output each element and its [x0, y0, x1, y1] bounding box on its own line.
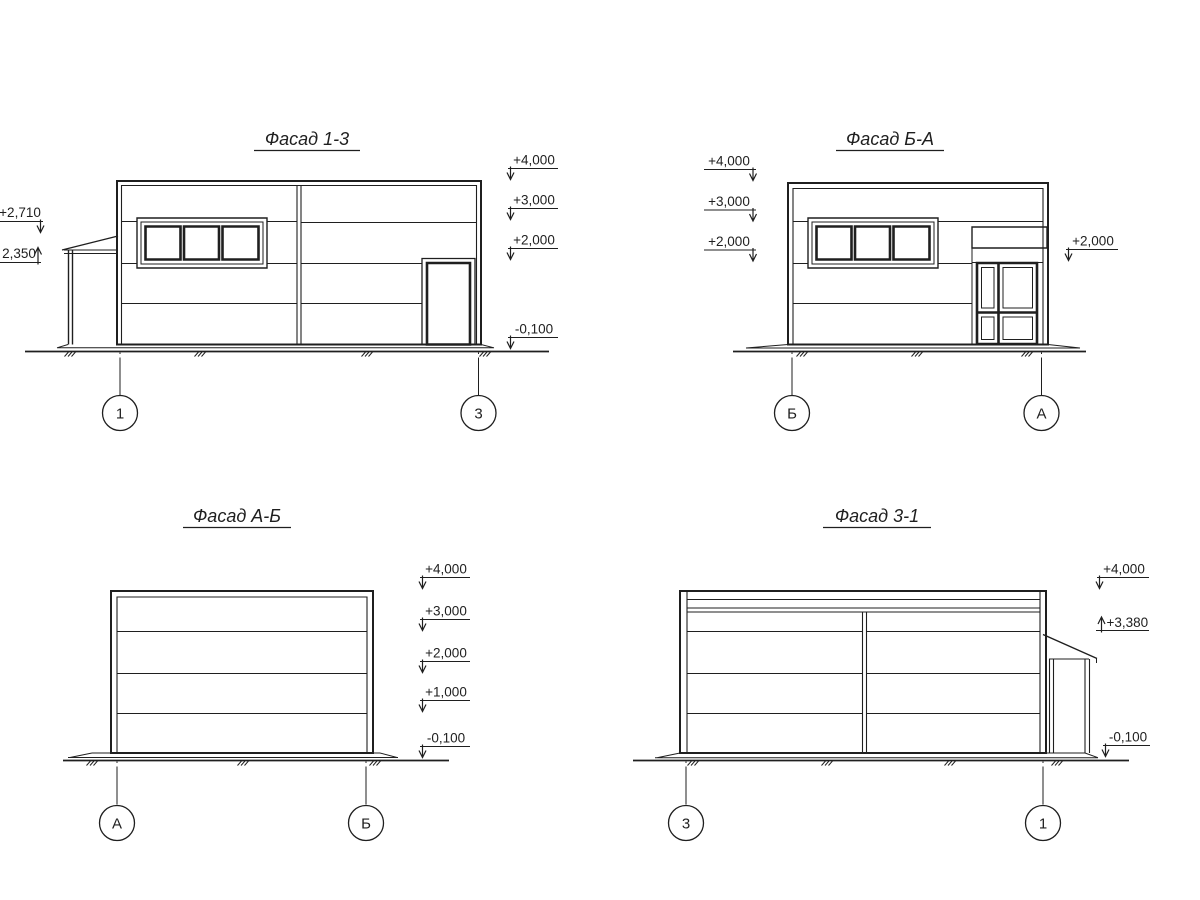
- axis-label: Б: [361, 816, 371, 833]
- wall-joint: [863, 612, 867, 753]
- window-pane: [894, 227, 930, 260]
- elevation-mark: +2,000: [1065, 234, 1118, 261]
- elevation-label: +2,000: [708, 234, 750, 249]
- fascia-band: [687, 600, 1040, 613]
- panel-lines-right: [867, 632, 1041, 714]
- building-inner-outline: [117, 597, 367, 753]
- glazed-door-bars: [977, 263, 1037, 344]
- window-pane: [184, 227, 219, 260]
- elevation-label: +4,000: [708, 154, 750, 169]
- facade-b-a-building: [788, 183, 1048, 345]
- elevation-mark: +2,710: [0, 205, 44, 233]
- facade-a-b-building: [111, 591, 373, 753]
- entrance: [972, 227, 1047, 345]
- elevation-mark: +3,000: [507, 193, 558, 220]
- door-glass: [982, 317, 995, 340]
- corner-columns: [687, 591, 1040, 753]
- elevation-mark: +3,000: [704, 194, 757, 221]
- door-opening: [422, 259, 475, 345]
- building-inner-outline: [793, 189, 1043, 345]
- elevation-mark: +2,000: [704, 234, 757, 261]
- elevation-label: +3,000: [425, 604, 467, 619]
- side-annex: [1043, 635, 1097, 754]
- window-pane: [855, 227, 890, 260]
- elevation-mark: +3,000: [419, 604, 470, 631]
- facade-b-a: Фасад Б-А: [704, 129, 1118, 431]
- facade-3-1-building: [680, 591, 1097, 753]
- ground-hatch: [797, 352, 808, 357]
- ground-hatch: [912, 352, 923, 357]
- facade-b-a-elevation-marks: +4,000 +3,000 +2,000 +2,000: [704, 154, 1118, 262]
- facade-title: Фасад Б-А: [846, 129, 934, 149]
- facade-1-3: Фасад 1-3: [0, 129, 558, 431]
- facade-title: Фасад А-Б: [193, 506, 281, 526]
- door: [422, 259, 475, 345]
- elevation-label: -0,100: [427, 731, 465, 746]
- elevation-mark: -0,100: [507, 322, 558, 349]
- elevation-label: +4,000: [513, 153, 555, 168]
- elevation-label: +1,000: [425, 685, 467, 700]
- annex-walls: [1050, 659, 1090, 753]
- ground-hatch: [87, 761, 98, 766]
- elevation-mark: -0,100: [1102, 730, 1150, 757]
- building-outline: [111, 591, 373, 753]
- facade-title: Фасад 3-1: [835, 506, 919, 526]
- drawing-sheet: Фасад 1-3: [0, 0, 1200, 900]
- side-annex: [62, 236, 118, 345]
- ribbon-window: [137, 218, 267, 268]
- door-glass: [1003, 268, 1033, 309]
- window-pane: [146, 227, 181, 260]
- ground-hatch: [370, 761, 381, 766]
- elevation-mark: -0,100: [419, 731, 470, 758]
- elevation-mark: +2,000: [419, 646, 470, 673]
- facade-1-3-building: [62, 181, 481, 345]
- ground-hatch: [688, 761, 699, 766]
- facade-b-a-ground: [733, 345, 1086, 357]
- facades-drawing: Фасад 1-3: [0, 0, 1200, 900]
- elevation-label: +2,000: [513, 233, 555, 248]
- elevation-label: +3,000: [513, 193, 555, 208]
- elevation-label: +2,710: [0, 205, 41, 220]
- ground-hatch: [1052, 761, 1063, 766]
- window-pane: [223, 227, 259, 260]
- building-inner-outline: [122, 186, 477, 345]
- facade-b-a-axes: Б А: [775, 353, 1060, 431]
- elevation-mark: 2,350: [0, 246, 42, 265]
- ground-hatch: [362, 352, 373, 357]
- elevation-label: -0,100: [515, 322, 553, 337]
- ground-hatch: [945, 761, 956, 766]
- ground-hatch: [195, 352, 206, 357]
- facade-3-1-ground: [633, 753, 1129, 766]
- facade-a-b-ground: [63, 753, 449, 766]
- facade-a-b: Фасад А-Б +4,000 +3,000: [63, 506, 470, 841]
- elevation-label: +4,000: [425, 562, 467, 577]
- entrance-canopy: [972, 227, 1047, 248]
- elevation-label: +2,000: [425, 646, 467, 661]
- elevation-mark: +4,000: [704, 154, 757, 181]
- facade-3-1-elevation-marks: +4,000 +3,380 -0,100: [1096, 562, 1150, 757]
- axis-label: 3: [682, 816, 690, 833]
- annex-roof-slope: [62, 236, 118, 250]
- elevation-mark: +4,000: [507, 153, 558, 180]
- annex-wall: [69, 250, 73, 345]
- door-leaf: [427, 263, 470, 345]
- glazed-door-frame: [977, 263, 1037, 344]
- elevation-label: -0,100: [1109, 730, 1147, 745]
- axis-label: 1: [1039, 816, 1047, 833]
- window-frame-inner: [141, 222, 263, 264]
- elevation-label: +3,000: [708, 194, 750, 209]
- elevation-label: 2,350: [2, 246, 36, 261]
- ground-hatch: [1022, 352, 1033, 357]
- facade-title: Фасад 1-3: [265, 129, 349, 149]
- facade-1-3-ground: [25, 345, 549, 357]
- elevation-mark: +2,000: [507, 233, 558, 260]
- window-pane: [817, 227, 852, 260]
- facade-3-1-axes: 3 1: [669, 762, 1061, 841]
- panel-lines-left: [122, 222, 298, 304]
- ground-hatch: [480, 352, 491, 357]
- ground-hatch: [822, 761, 833, 766]
- facade-1-3-axes: 1 3: [103, 353, 497, 431]
- elevation-mark: +4,000: [419, 562, 470, 589]
- axis-label: 1: [116, 406, 124, 423]
- facade-a-b-axes: А Б: [100, 762, 384, 841]
- ribbon-window: [808, 218, 938, 268]
- axis-label: Б: [787, 406, 797, 423]
- elevation-label: +3,380: [1107, 615, 1149, 630]
- elevation-mark: +3,380: [1096, 615, 1149, 633]
- ground-hatch: [238, 761, 249, 766]
- facade-3-1: Фасад 3-1 +4,000: [633, 506, 1150, 841]
- facade-a-b-elevation-marks: +4,000 +3,000 +2,000 +1,000 -0,100: [419, 562, 470, 758]
- wall-joint: [297, 186, 301, 345]
- door-glass: [982, 268, 995, 309]
- panel-lines-left: [687, 632, 863, 714]
- door-glass: [1003, 317, 1033, 340]
- panel-lines: [117, 632, 367, 714]
- axis-label: А: [112, 816, 122, 833]
- axis-label: 3: [474, 406, 482, 423]
- axis-label: А: [1036, 406, 1046, 423]
- elevation-mark: +1,000: [419, 685, 470, 712]
- annex-roof-slope: [1043, 635, 1097, 659]
- ground-hatch: [65, 352, 76, 357]
- elevation-label: +2,000: [1072, 234, 1114, 249]
- elevation-label: +4,000: [1103, 562, 1145, 577]
- window-frame-inner: [812, 222, 934, 264]
- elevation-mark: +4,000: [1096, 562, 1149, 589]
